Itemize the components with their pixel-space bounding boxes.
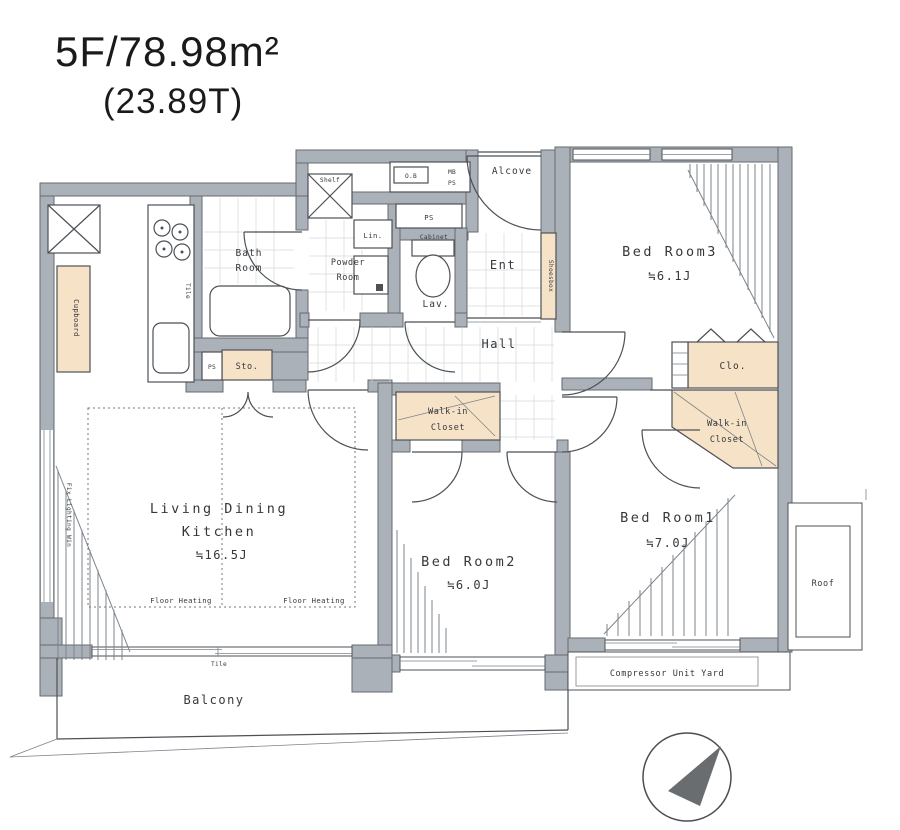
ldk-name-2: Kitchen <box>182 524 256 540</box>
clo-label: Clo. <box>720 361 747 372</box>
bedroom3-name: Bed Room3 <box>622 244 718 260</box>
bedroom1-window <box>605 640 740 650</box>
ps-top-label: PS <box>448 180 456 187</box>
ldk-door-arc <box>308 390 368 450</box>
ldk-size: ≒16.5J <box>196 548 248 562</box>
alcove-label: Alcove <box>492 166 532 177</box>
shoesbox-label: Shoesbox <box>547 260 554 292</box>
wic-left-label-1: Walk-in <box>428 407 468 417</box>
bathtub <box>210 286 290 336</box>
cupboard-label: Cupboard <box>72 299 81 337</box>
hatch-bedroom2 <box>397 530 446 653</box>
bedroom2-window <box>400 657 545 670</box>
bedroom2-size: ≒6.0J <box>447 578 491 592</box>
floor-plan: Bath Room Powder Room Lav. Cabinet Ent A… <box>0 0 900 830</box>
roof-outline <box>788 489 866 650</box>
sto-label: Sto. <box>236 362 259 372</box>
balcony-label: Balcony <box>183 693 244 707</box>
folding-door-marks <box>697 329 765 342</box>
closet-ladder <box>672 342 688 388</box>
mb-label: MB <box>448 169 456 176</box>
bedroom3-size: ≒6.1J <box>648 269 692 283</box>
bedroom1-name: Bed Room1 <box>620 510 716 526</box>
compass-icon <box>643 733 731 821</box>
toilet-bowl <box>416 255 450 297</box>
ob-label: O.B <box>405 173 417 180</box>
bath-door-arc <box>244 232 302 290</box>
bath-label-2: Room <box>236 263 263 274</box>
bedroom2-name: Bed Room2 <box>421 554 517 570</box>
tile-kitchen-label: Tile <box>184 283 191 299</box>
ldk-window <box>92 647 352 656</box>
side-window-note: Fix Lighting Win <box>65 483 72 547</box>
ldk-side-window <box>41 430 53 602</box>
wic-left-label-2: Closet <box>431 423 465 433</box>
bedroom1-door-arc <box>562 397 617 452</box>
kitchen-sink <box>153 323 189 373</box>
balcony-outline <box>10 658 568 757</box>
toilet-tank <box>412 240 454 256</box>
hall-label: Hall <box>482 337 517 351</box>
bath-label-1: Bath <box>236 248 263 259</box>
ent-label: Ent <box>490 258 516 272</box>
wic-right-label-1: Walk-in <box>707 419 747 429</box>
lav-door-arc <box>405 322 455 372</box>
floor-heating-left: Floor Heating <box>150 596 211 605</box>
lin-label: Lin. <box>364 231 383 240</box>
bedroom2-door-arc-left <box>412 452 462 502</box>
wic-right-label-2: Closet <box>710 435 744 445</box>
powder-door-arc <box>308 320 360 372</box>
storage-double-door-arcs <box>223 392 273 417</box>
compressor-yard-label: Compressor Unit Yard <box>610 669 724 679</box>
bedroom2-door-arc-right <box>507 452 557 502</box>
washer-drain <box>376 284 383 291</box>
lav-label: Lav. <box>423 299 450 310</box>
roof-label: Roof <box>812 579 835 589</box>
powder-label-1: Powder <box>331 258 365 268</box>
shelf-label: Shelf <box>320 177 340 184</box>
ldk-name-1: Living Dining <box>150 501 288 517</box>
tile-balcony-label: Tile <box>211 661 227 668</box>
powder-label-2: Room <box>337 273 360 283</box>
ps-sto-label: PS <box>208 364 216 371</box>
floor-heating-right: Floor Heating <box>283 596 344 605</box>
ps-box-label: PS <box>424 213 433 222</box>
cabinet-label: Cabinet <box>420 234 448 241</box>
bedroom1-size: ≒7.0J <box>646 536 690 550</box>
